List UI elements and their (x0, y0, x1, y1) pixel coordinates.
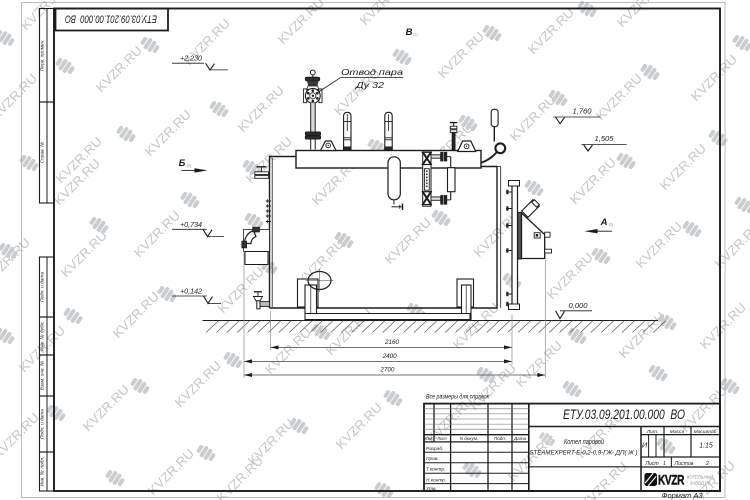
svg-text:Инв. № подл.: Инв. № подл. (40, 457, 46, 487)
svg-text:Инв. № дубл.: Инв. № дубл. (40, 321, 46, 351)
svg-text:Т.контр.: Т.контр. (426, 467, 445, 473)
svg-text:И: И (642, 441, 648, 450)
svg-text:+0,734: +0,734 (180, 222, 202, 229)
svg-text:KVZR: KVZR (658, 473, 685, 488)
svg-text:Отвод пара: Отвод пара (341, 68, 404, 77)
svg-text:Дата: Дата (513, 436, 527, 441)
svg-text:(1): (1) (187, 164, 191, 168)
svg-text:2: 2 (705, 461, 709, 467)
svg-text:Ду 32: Ду 32 (355, 81, 385, 90)
svg-text:1,760: 1,760 (573, 109, 592, 116)
svg-text:Изм.: Изм. (425, 436, 434, 441)
svg-text:N докум.: N докум. (460, 436, 479, 441)
svg-text:Формат А3: Формат А3 (662, 493, 703, 500)
svg-text:0,000: 0,000 (569, 303, 588, 310)
svg-text:Разраб.: Разраб. (426, 446, 443, 452)
svg-text:Подп.: Подп. (494, 436, 506, 441)
svg-text:STEAMEXPERT-Е-0,2-0,9-ГЖ- ДП(: STEAMEXPERT-Е-0,2-0,9-ГЖ- ДП( Ж ) (530, 449, 638, 456)
svg-text:(1): (1) (413, 33, 417, 37)
svg-text:2160: 2160 (384, 339, 399, 346)
svg-text:Масса: Масса (670, 429, 685, 435)
svg-text:Взам. инв. №: Взам. инв. № (40, 361, 46, 391)
svg-text:КОТЕЛЬНЫЙ: КОТЕЛЬНЫЙ (687, 475, 713, 480)
svg-text:А: А (600, 217, 608, 228)
svg-text:1: 1 (663, 461, 666, 467)
svg-text:+0,142: +0,142 (180, 288, 202, 295)
svg-text:В: В (406, 27, 413, 38)
svg-text:ЕТУ.03.09.201.00.000 ВО: ЕТУ.03.09.201.00.000 ВО (65, 13, 157, 25)
svg-text:Перв. примен.: Перв. примен. (40, 39, 46, 71)
svg-text:Лист: Лист (437, 436, 447, 441)
svg-text:Н.контр.: Н.контр. (426, 477, 446, 483)
svg-text:(1): (1) (609, 223, 613, 227)
svg-text:+2,230: +2,230 (180, 56, 202, 63)
svg-text:Подп. и дата: Подп. и дата (40, 409, 46, 439)
svg-text:Листов: Листов (674, 461, 694, 467)
svg-text:2700: 2700 (379, 367, 394, 374)
svg-text:Все размеры для справок: Все размеры для справок (426, 392, 490, 400)
svg-text:1:15: 1:15 (699, 443, 713, 450)
svg-text:Утв.: Утв. (426, 486, 437, 492)
svg-text:Лист: Лист (644, 461, 659, 467)
svg-text:Подп. и дата: Подп. и дата (40, 272, 46, 302)
svg-text:Справ. №: Справ. № (40, 142, 46, 164)
svg-text:Лит.: Лит. (646, 429, 658, 435)
svg-text:1,505: 1,505 (595, 136, 614, 143)
svg-text:ЕТУ.03.09.201.00.000 ВО: ЕТУ.03.09.201.00.000 ВО (563, 407, 685, 423)
svg-text:ЗАВОД.РУ: ЗАВОД.РУ (690, 481, 712, 486)
svg-text:Масштаб: Масштаб (694, 429, 717, 435)
svg-text:2400: 2400 (382, 353, 397, 360)
svg-text:Пров.: Пров. (426, 456, 439, 462)
svg-text:Котел паровой: Котел паровой (564, 437, 604, 446)
svg-text:Б: Б (179, 158, 186, 169)
